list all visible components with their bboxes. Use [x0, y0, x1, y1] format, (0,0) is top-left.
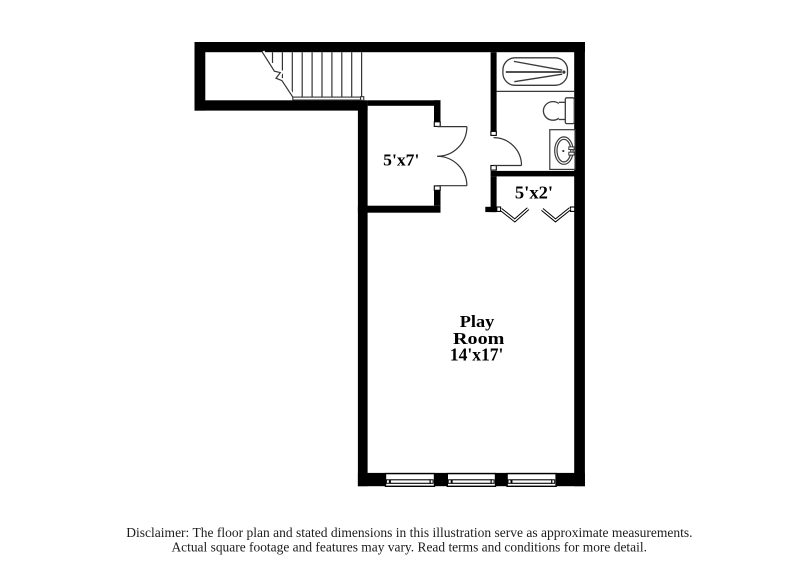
- svg-text:Actual square footage and feat: Actual square footage and features may v…: [171, 540, 647, 555]
- svg-text:5'x2': 5'x2': [515, 182, 553, 202]
- svg-text:14'x17': 14'x17': [450, 344, 504, 364]
- svg-text:5'x7': 5'x7': [383, 150, 419, 169]
- svg-text:Disclaimer: The floor plan and: Disclaimer: The floor plan and stated di…: [126, 525, 692, 540]
